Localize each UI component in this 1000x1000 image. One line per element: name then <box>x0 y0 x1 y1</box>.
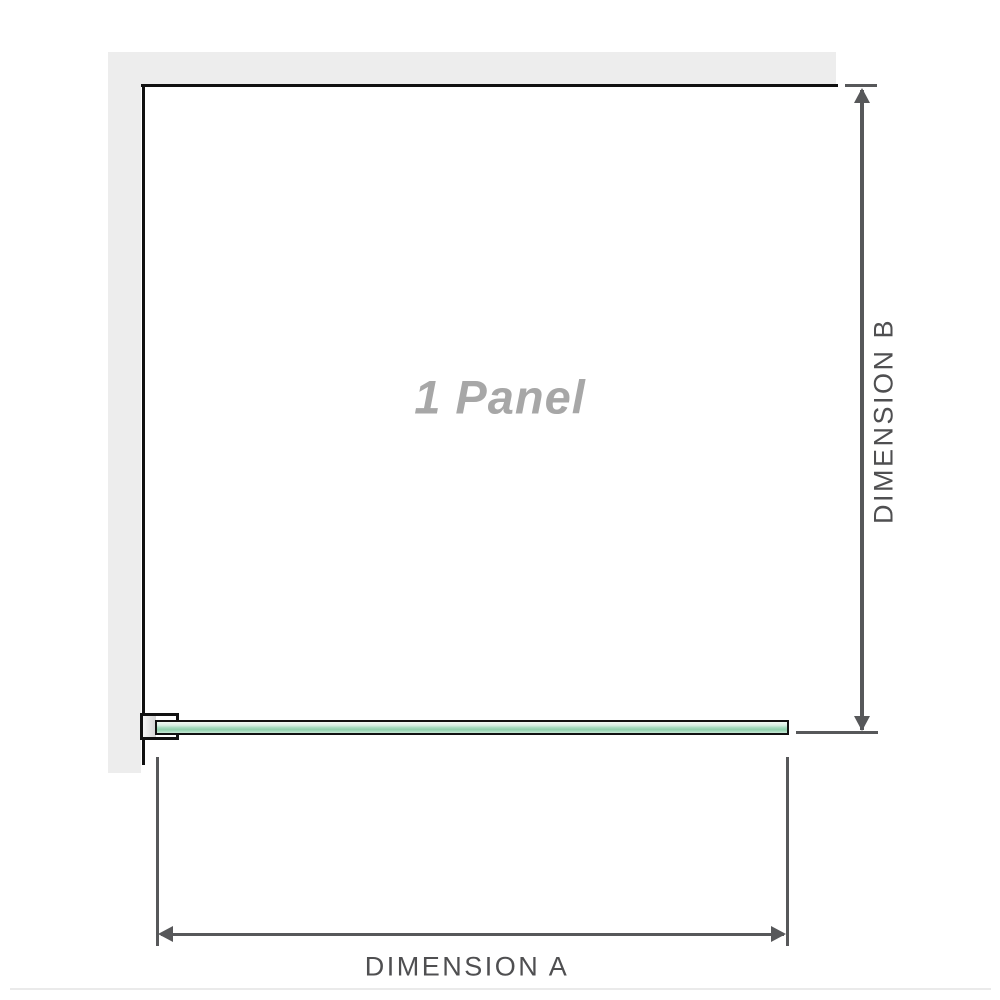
dim-b-arrowhead-down-icon <box>854 716 870 731</box>
panel-outline-top <box>141 84 838 87</box>
wall-left <box>108 52 141 773</box>
dimension-a-label: DIMENSION A <box>365 952 570 983</box>
dim-a-extension-right <box>786 757 789 946</box>
dim-b-arrowhead-up-icon <box>854 88 870 103</box>
dim-a-arrowhead-left-icon <box>158 926 173 942</box>
wall-top <box>108 52 836 85</box>
panel-count-label: 1 Panel <box>414 370 586 425</box>
dim-b-tick-top <box>845 84 877 87</box>
dim-a-arrowhead-right-icon <box>771 926 786 942</box>
dim-b-tick-bottom <box>796 731 878 734</box>
panel-dimension-diagram: 1 Panel DIMENSION B DIMENSION A <box>0 0 1000 1000</box>
dim-a-extension-left <box>156 757 159 946</box>
bottom-divider <box>10 988 991 990</box>
panel-outline-left <box>142 84 145 765</box>
dim-a-line <box>161 933 784 936</box>
dim-b-line <box>860 90 864 730</box>
glass-panel <box>155 720 789 735</box>
dimension-b-label: DIMENSION B <box>869 318 900 524</box>
